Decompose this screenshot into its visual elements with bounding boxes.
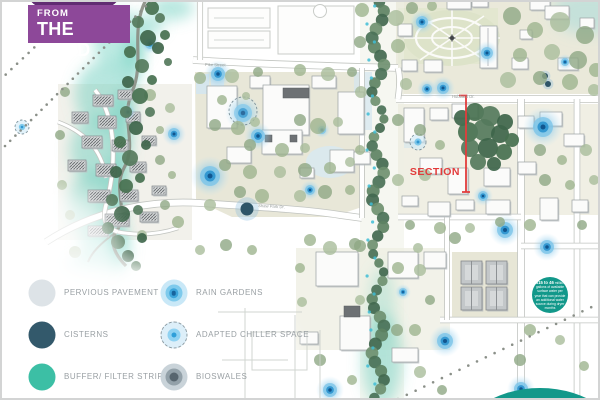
water-stat-circle: 615 to 46 million gallons of available s… bbox=[532, 277, 568, 313]
stat-highlight: 615 to 46 bbox=[536, 280, 554, 285]
street-label: Pike Street bbox=[205, 62, 226, 67]
badge-kicker: FROM bbox=[37, 8, 130, 19]
street-label: Hubbard Dr. bbox=[452, 94, 475, 99]
from-the-field-badge: FROM THE FIELD bbox=[28, 5, 130, 43]
from-the-field-campus-map: SECTION Pike Street Hubbard Dr. Shaw Par… bbox=[0, 0, 600, 400]
parking-lots bbox=[208, 5, 354, 55]
stat-rest: million gallons of available surface wat… bbox=[535, 281, 566, 310]
section-label: SECTION bbox=[410, 166, 460, 178]
badge-title: THE FIELD bbox=[37, 19, 130, 61]
water-stat-text: 615 to 46 million gallons of available s… bbox=[535, 280, 566, 310]
